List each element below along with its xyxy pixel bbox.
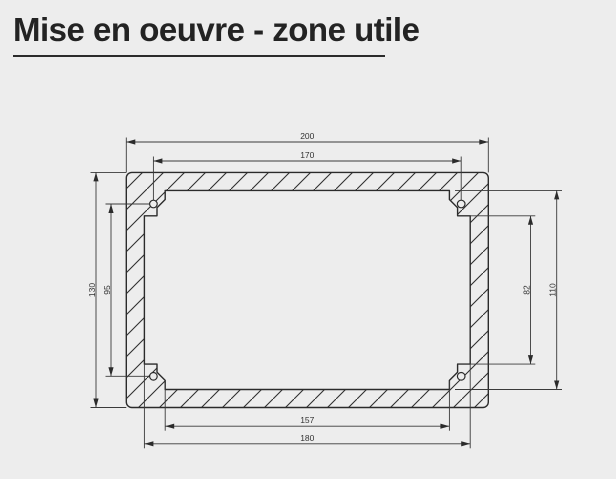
page: Mise en oeuvre - zone utile	[0, 0, 616, 479]
dim-label-bottom-tab-clearance: 157	[300, 415, 314, 425]
screw-hole-top-right	[457, 200, 465, 208]
screw-hole-bottom-right	[457, 373, 465, 381]
dim-label-left-hole-spacing: 95	[102, 285, 112, 295]
dim-label-top-hole-spacing: 170	[300, 150, 314, 160]
dim-label-right-tab-clearance: 82	[522, 285, 532, 295]
dim-label-inner-width: 180	[300, 433, 314, 443]
technical-drawing: 200 170 157 180 130 95 82 110	[0, 0, 616, 479]
dim-label-inner-height: 110	[548, 283, 558, 297]
dim-label-outer-width: 200	[300, 131, 314, 141]
screw-hole-bottom-left	[150, 373, 158, 381]
frame-outer-outline	[126, 172, 488, 407]
frame-opening-outline	[144, 190, 470, 389]
screw-hole-top-left	[150, 200, 158, 208]
wall-hatching	[126, 172, 488, 407]
dim-label-outer-height: 130	[87, 283, 97, 297]
